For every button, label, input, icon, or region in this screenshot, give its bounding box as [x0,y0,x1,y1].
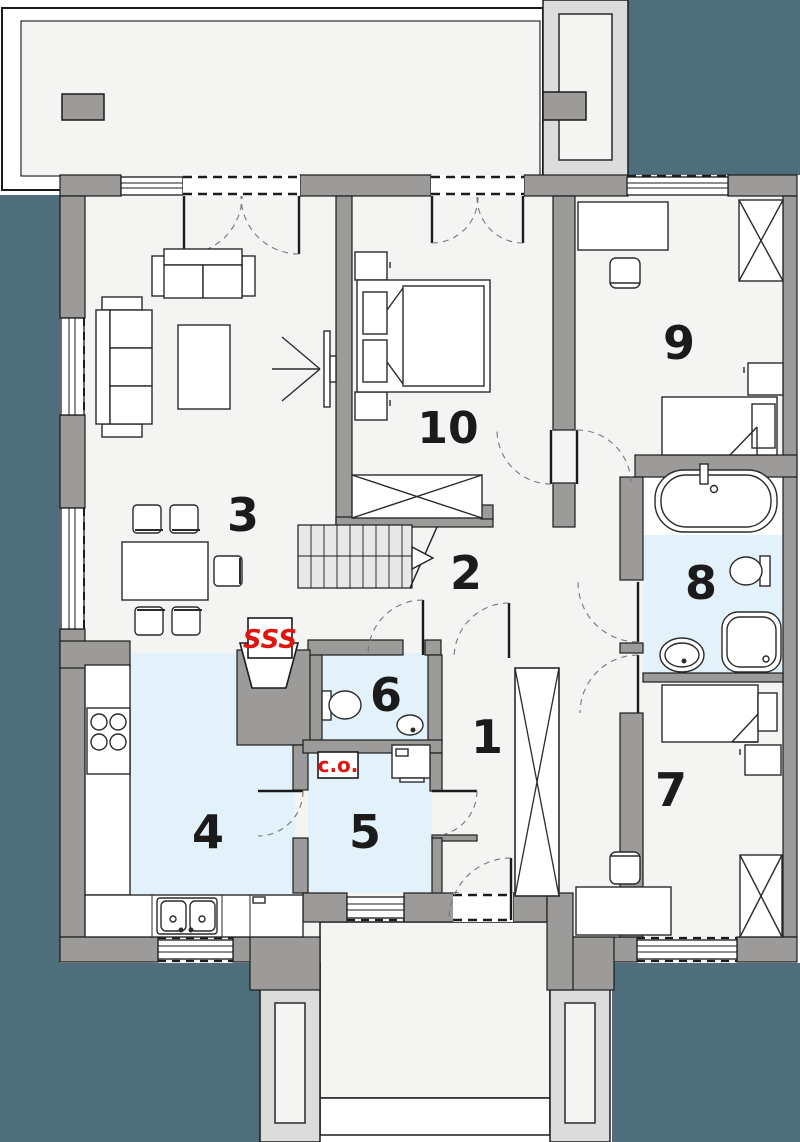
dining-table [122,542,208,600]
top-porch-column [543,0,628,176]
porch-column-inner [559,14,612,160]
porch-step [320,1098,550,1135]
double-bed [357,280,490,392]
stairs-treads [298,525,412,588]
wall-left-1 [60,196,85,318]
central-heating-label: c.o. [318,753,359,777]
room-label-8: 8 [685,556,717,610]
wall-bed10-bed9-divider [553,196,575,430]
teal-top-right [628,0,800,175]
dining-chair [172,607,200,635]
single-bed [662,397,777,455]
dining-chair [214,556,242,586]
room-label-1: 1 [471,710,503,764]
porch-column-right-inner [565,1003,595,1123]
terrace-pillar [62,94,104,120]
fireplace-heat-icon: SSS [243,625,297,655]
desk [578,202,668,250]
sofa-two-seat [152,249,255,298]
coffee-table [178,325,230,409]
wall-top-3 [524,175,628,196]
hall-wardrobe [515,668,559,896]
boiler [392,745,430,782]
window-kitchen [158,938,233,961]
room-label-10: 10 [417,403,478,454]
floor-plan-drawing: SSS c.o. [0,0,800,1142]
nightstand [355,392,387,420]
nightstand [748,363,783,395]
wall-left-2 [60,415,85,508]
dining-chair [170,505,198,533]
wall-wc-top-stub [425,640,441,655]
stove-icon [87,708,130,774]
wall-hall-stub [553,483,575,527]
room-label-9: 9 [663,316,695,370]
terrace [2,8,543,190]
window-left-upper [61,318,84,415]
wall-stairs-notch [481,505,493,519]
nightstand [355,252,387,280]
toilet-icon [322,691,361,720]
wall-porch-cap-left [250,937,320,990]
bathtub-icon [655,464,777,532]
washbasin-icon [660,638,704,672]
porch-floor [320,922,550,1098]
room-label-7: 7 [655,763,687,817]
wall-hall-bottom-1 [404,893,458,922]
wall-utility-right-1 [430,753,442,791]
wall-kitchen-stub [60,641,130,668]
wall-corridor-east-2 [620,643,643,653]
toilet-icon [730,556,770,586]
appliance-mark [253,897,265,903]
wall-right [783,196,797,937]
wardrobe-icon [352,475,482,518]
chair [610,852,640,884]
kitchen-counter-left [85,665,130,895]
floor-plan-page: SSS c.o. [0,0,800,1142]
wall-wc-top [308,640,403,655]
wall-hall-bottom-corner [547,893,573,990]
sofa-three-seat [96,297,152,437]
wall-corridor-east-1 [620,477,643,580]
room-label-3: 3 [227,488,259,542]
wall-bath-bed7-divider [643,673,783,682]
wall-top-2 [300,175,431,196]
shower-icon [722,612,781,672]
room-label-6: 6 [370,668,402,722]
window-bed7 [637,938,737,961]
wall-top-1 [60,175,121,196]
teal-left [0,195,60,963]
wall-utility-bottom [303,893,347,922]
wall-wc-right [428,655,442,743]
kitchen-sink-icon [157,898,217,934]
room-label-2: 2 [450,546,482,600]
porch-column-left-inner [275,1003,305,1123]
window-utility [347,897,404,920]
porch-pillar-block [543,92,586,120]
nightstand [745,745,781,775]
room-label-4: 4 [192,805,224,859]
room-label-5: 5 [349,805,381,859]
dining-chair [133,505,161,533]
desk [576,887,671,935]
wall-kitchen-utility-2 [293,838,308,893]
wall-hall-bottom-2 [513,893,547,922]
wall-top-4 [728,175,797,196]
wardrobe-icon [739,200,783,281]
teal-bottom-right [612,963,800,1142]
wall-bottom-4 [737,937,797,962]
wardrobe-icon [740,855,782,937]
window-top-right [627,176,728,195]
window-top-left [121,177,183,195]
wall-left-3 [60,629,85,937]
window-left-lower [61,508,84,629]
dining-chair [135,607,163,635]
wall-bottom-1 [60,937,158,962]
bed10-furniture [352,252,490,518]
wall-utility-right-2 [432,838,442,895]
teal-bottom-left [0,963,262,1142]
